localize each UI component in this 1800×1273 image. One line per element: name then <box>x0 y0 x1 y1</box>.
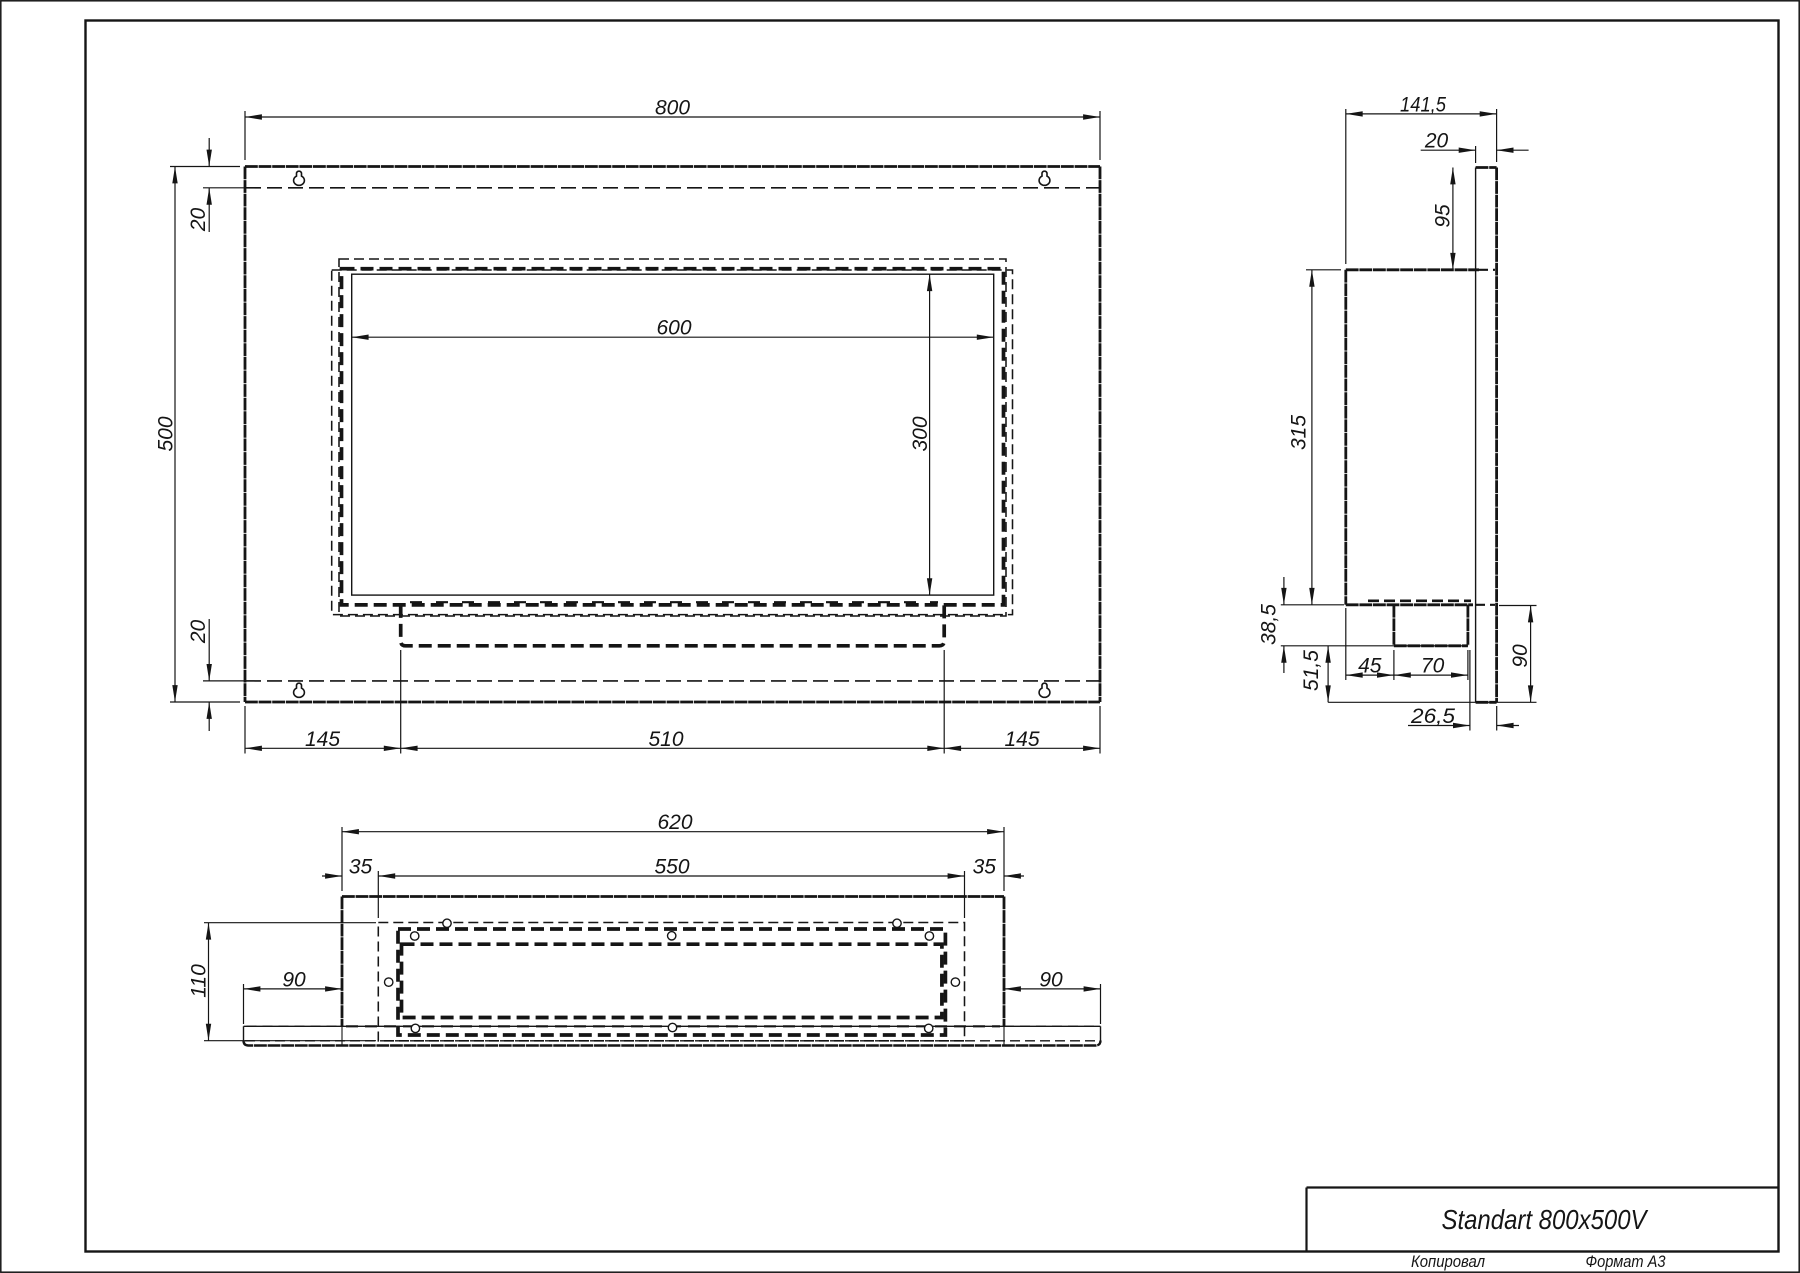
svg-text:26,5: 26,5 <box>1410 705 1455 728</box>
svg-text:90: 90 <box>282 968 306 991</box>
svg-text:70: 70 <box>1421 655 1445 678</box>
svg-text:38,5: 38,5 <box>1258 604 1281 645</box>
svg-text:45: 45 <box>1358 655 1382 678</box>
svg-text:315: 315 <box>1288 415 1311 450</box>
svg-text:800: 800 <box>655 97 690 120</box>
svg-text:550: 550 <box>654 856 689 879</box>
svg-text:600: 600 <box>656 317 691 340</box>
svg-text:95: 95 <box>1432 204 1455 228</box>
svg-text:620: 620 <box>657 811 692 834</box>
svg-text:35: 35 <box>973 856 997 879</box>
svg-text:90: 90 <box>1039 968 1063 991</box>
svg-text:500: 500 <box>155 416 178 451</box>
svg-text:300: 300 <box>909 416 932 451</box>
svg-text:145: 145 <box>305 728 340 751</box>
svg-text:Копировал: Копировал <box>1411 1252 1485 1271</box>
svg-text:20: 20 <box>1424 130 1449 153</box>
svg-text:51,5: 51,5 <box>1300 650 1323 691</box>
svg-text:510: 510 <box>648 728 683 751</box>
svg-text:90: 90 <box>1509 644 1532 668</box>
svg-text:Standart 800x500V: Standart 800x500V <box>1442 1204 1649 1235</box>
svg-text:Формат А3: Формат А3 <box>1586 1252 1666 1271</box>
svg-text:110: 110 <box>187 964 210 998</box>
svg-text:141,5: 141,5 <box>1400 93 1446 116</box>
svg-text:35: 35 <box>349 856 373 879</box>
svg-text:20: 20 <box>187 208 210 233</box>
svg-text:20: 20 <box>187 620 210 645</box>
svg-text:145: 145 <box>1004 728 1039 751</box>
